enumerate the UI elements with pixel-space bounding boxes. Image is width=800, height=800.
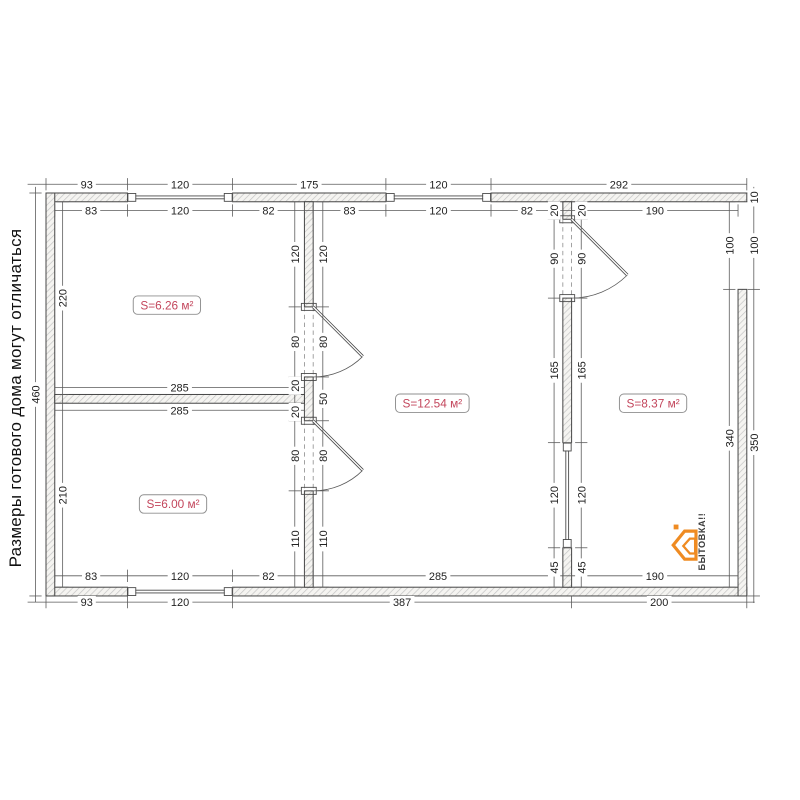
- svg-text:285: 285: [429, 571, 447, 583]
- svg-text:190: 190: [646, 206, 664, 218]
- dimension-label: 90: [575, 250, 588, 268]
- wall-segment: [563, 548, 572, 587]
- logo-chimney-dot: [674, 525, 679, 530]
- svg-text:110: 110: [318, 530, 330, 547]
- svg-text:80: 80: [318, 450, 330, 462]
- dimension-label: 100: [723, 233, 736, 258]
- wall-segment: [233, 587, 747, 596]
- dimension-label: 83: [82, 204, 100, 217]
- dimension-label: 90: [548, 250, 561, 268]
- dimension-label: 82: [259, 570, 277, 583]
- svg-text:120: 120: [171, 206, 189, 218]
- dimension-label: 285: [167, 381, 192, 394]
- dimension-label: 80: [289, 333, 302, 351]
- dimension-label: 120: [426, 178, 451, 191]
- svg-text:90: 90: [549, 253, 561, 265]
- svg-text:285: 285: [170, 383, 188, 395]
- svg-text:120: 120: [171, 179, 189, 191]
- dimension-label: 387: [390, 596, 415, 609]
- wall-segment: [304, 202, 313, 307]
- door-swing-arc: [313, 470, 363, 491]
- dimension-label: 20: [289, 403, 302, 421]
- svg-text:S=8.37 м²: S=8.37 м²: [627, 396, 680, 410]
- door: [301, 303, 362, 380]
- svg-text:120: 120: [318, 245, 330, 263]
- svg-text:387: 387: [393, 597, 411, 609]
- page-canvas: Размеры готового дома могут отличаться 9…: [0, 0, 800, 800]
- dimension-label: 175: [297, 178, 322, 191]
- dimension-label: 83: [340, 204, 358, 217]
- dimension-line: 120805080110: [317, 202, 330, 587]
- window: [127, 193, 232, 202]
- dimension-label: 165: [575, 358, 588, 383]
- svg-text:82: 82: [262, 571, 274, 583]
- wall-segment: [46, 587, 127, 596]
- door-swing-arc: [572, 275, 628, 298]
- dimension-label: 20: [575, 201, 588, 219]
- svg-text:175: 175: [300, 179, 318, 191]
- svg-text:285: 285: [170, 405, 188, 417]
- svg-text:120: 120: [290, 245, 302, 263]
- svg-text:S=12.54 м²: S=12.54 м²: [402, 396, 462, 410]
- svg-text:93: 93: [81, 179, 93, 191]
- svg-text:120: 120: [171, 597, 189, 609]
- dimension-label: 190: [642, 570, 667, 583]
- dimension-label: 100: [748, 233, 761, 258]
- svg-text:20: 20: [549, 204, 561, 216]
- svg-text:120: 120: [576, 486, 588, 504]
- svg-text:S=6.26 м²: S=6.26 м²: [140, 298, 193, 312]
- door: [560, 216, 628, 302]
- dimension-label: 120: [317, 242, 330, 267]
- dimension-label: 120: [168, 570, 193, 583]
- svg-text:200: 200: [650, 597, 668, 609]
- dimension-label: 292: [607, 178, 632, 191]
- svg-text:340: 340: [724, 429, 736, 447]
- dimension-label: 220: [57, 286, 70, 311]
- logo-text: БЫТОВКА!!: [697, 513, 707, 571]
- svg-text:45: 45: [576, 561, 588, 573]
- svg-text:100: 100: [724, 236, 736, 254]
- svg-text:10: 10: [749, 191, 761, 203]
- window: [127, 587, 232, 596]
- dimension-line: 209016512045: [548, 201, 561, 587]
- svg-text:90: 90: [576, 253, 588, 265]
- room-area-badge: S=8.37 м²: [619, 394, 686, 412]
- svg-text:190: 190: [646, 571, 664, 583]
- dimension-line: 93120387200: [28, 596, 755, 609]
- svg-text:120: 120: [429, 179, 447, 191]
- svg-text:460: 460: [31, 385, 43, 403]
- room-area-badge: S=12.54 м²: [396, 394, 470, 412]
- room-area-badge: S=6.00 м²: [139, 495, 206, 513]
- dimension-label: 120: [548, 483, 561, 508]
- dimension-label: 350: [748, 430, 761, 455]
- svg-text:45: 45: [549, 561, 561, 573]
- dimension-label: 80: [317, 447, 330, 465]
- dimension-label: 83: [82, 570, 100, 583]
- plan-group: 9312017512029283120828312082190285285831…: [28, 178, 761, 609]
- dimension-label: 210: [57, 483, 70, 508]
- svg-text:93: 93: [81, 597, 93, 609]
- svg-text:210: 210: [58, 486, 70, 504]
- svg-text:82: 82: [521, 206, 533, 218]
- dimension-label: 120: [168, 178, 193, 191]
- wall-segment: [491, 193, 747, 202]
- svg-text:120: 120: [549, 486, 561, 504]
- wall-segment: [46, 193, 127, 202]
- svg-text:83: 83: [343, 206, 355, 218]
- svg-text:110: 110: [290, 530, 302, 547]
- dimension-label: 80: [289, 447, 302, 465]
- dimension-label: 285: [167, 404, 192, 417]
- dimension-line: 100340: [723, 202, 736, 587]
- dimension-label: 340: [723, 426, 736, 451]
- window: [386, 193, 491, 202]
- dimension-line: 83120828312082190: [55, 204, 738, 217]
- svg-text:20: 20: [290, 406, 302, 418]
- dimension-label: 200: [647, 596, 672, 609]
- svg-text:165: 165: [576, 361, 588, 379]
- dimension-label: 45: [548, 558, 561, 576]
- svg-text:292: 292: [610, 179, 628, 191]
- svg-text:82: 82: [262, 206, 274, 218]
- svg-text:120: 120: [429, 206, 447, 218]
- dimension-label: 45: [575, 558, 588, 576]
- dimension-line: 10100350: [748, 187, 761, 603]
- dimension-line: 285: [55, 381, 305, 394]
- svg-text:165: 165: [549, 361, 561, 379]
- svg-text:20: 20: [576, 204, 588, 216]
- floor-plan-drawing: 9312017512029283120828312082190285285831…: [0, 0, 800, 800]
- wall-segment: [304, 377, 313, 421]
- dimension-line: 209016512045: [575, 201, 588, 587]
- dimension-label: 460: [29, 382, 42, 407]
- dimension-line: 12080202080110: [289, 202, 302, 587]
- svg-text:83: 83: [85, 206, 97, 218]
- dimension-label: 120: [168, 204, 193, 217]
- wall-segment: [55, 394, 305, 403]
- dimension-label: 165: [548, 358, 561, 383]
- dimension-line: 285: [55, 404, 305, 417]
- svg-text:220: 220: [58, 289, 70, 307]
- svg-text:80: 80: [318, 336, 330, 348]
- dimension-line: 93120175120292: [28, 178, 747, 191]
- dimension-label: 80: [317, 333, 330, 351]
- svg-text:50: 50: [318, 393, 330, 405]
- dimension-line: 220210: [57, 202, 70, 587]
- door-swing-arc: [313, 356, 363, 377]
- dimension-label: 20: [548, 201, 561, 219]
- dimension-label: 110: [317, 527, 330, 552]
- door: [301, 417, 362, 494]
- dimension-label: 82: [259, 204, 277, 217]
- dimension-label: 110: [289, 527, 302, 552]
- svg-text:20: 20: [290, 380, 302, 392]
- dimension-label: 120: [289, 242, 302, 267]
- wall-segment: [233, 193, 386, 202]
- svg-text:83: 83: [85, 571, 97, 583]
- svg-text:120: 120: [171, 571, 189, 583]
- logo: БЫТОВКА!!: [673, 513, 707, 571]
- dimension-line: 8312082285190: [55, 570, 738, 583]
- svg-text:80: 80: [290, 450, 302, 462]
- window: [563, 443, 572, 548]
- dimension-label: 190: [642, 204, 667, 217]
- wall-segment: [304, 491, 313, 587]
- wall-segment: [738, 289, 747, 596]
- dimension-label: 93: [78, 178, 96, 191]
- dimension-label: 120: [168, 596, 193, 609]
- wall-segment: [563, 298, 572, 443]
- room-area-badge: S=6.26 м²: [133, 296, 200, 314]
- dimension-line: 460: [29, 187, 42, 602]
- dimension-label: 93: [78, 596, 96, 609]
- dimension-label: 20: [289, 377, 302, 395]
- wall-segment: [46, 193, 55, 596]
- svg-text:80: 80: [290, 336, 302, 348]
- dimension-label: 285: [426, 570, 451, 583]
- dimension-label: 120: [575, 483, 588, 508]
- dimension-label: 10: [748, 188, 761, 206]
- svg-text:100: 100: [749, 236, 761, 254]
- dimension-label: 82: [518, 204, 536, 217]
- dimension-label: 50: [317, 390, 330, 408]
- dimension-label: 120: [426, 204, 451, 217]
- svg-text:350: 350: [749, 434, 761, 452]
- svg-text:S=6.00 м²: S=6.00 м²: [146, 497, 199, 511]
